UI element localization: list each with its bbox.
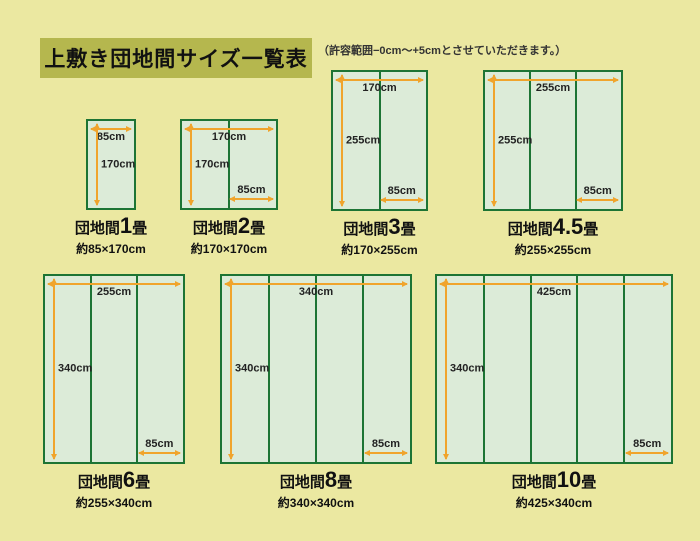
panel-dimension-label: 85cm bbox=[623, 439, 671, 450]
diagram-name-number: 10 bbox=[557, 467, 581, 492]
tolerance-note: （許容範囲−0cm〜+5cmとさせていただきます。） bbox=[318, 42, 566, 58]
diagram-caption: 団地間6畳 約255×340cm bbox=[76, 468, 152, 511]
width-dimension-line bbox=[48, 283, 180, 285]
width-dimension-line bbox=[488, 79, 618, 81]
panel-dimension-line bbox=[139, 452, 180, 454]
diagram-name-suffix: 畳 bbox=[401, 221, 416, 238]
diagram-name-number: 4.5 bbox=[553, 214, 584, 239]
diagram-caption: 団地間8畳 約340×340cm bbox=[278, 468, 354, 511]
panel-dimension-line bbox=[626, 452, 668, 454]
diagram-size: 約255×340cm bbox=[76, 494, 152, 511]
rug-outline: 170cm255cm85cm bbox=[331, 70, 428, 211]
width-dimension-line bbox=[336, 79, 423, 81]
panel-divider-line bbox=[362, 276, 364, 462]
diagram-name-suffix: 畳 bbox=[337, 474, 352, 491]
width-dimension-line bbox=[440, 283, 668, 285]
height-dimension-line bbox=[190, 124, 192, 205]
diagram-caption: 団地間3畳 約170×255cm bbox=[341, 215, 417, 258]
diagram-name-prefix: 団地間 bbox=[75, 220, 120, 237]
width-dimension-label: 425cm bbox=[437, 287, 671, 298]
rug-outline: 255cm255cm85cm bbox=[483, 70, 623, 211]
height-dimension-label: 170cm bbox=[101, 159, 135, 170]
diagram-name: 団地間10畳 bbox=[512, 468, 597, 492]
diagram-name-suffix: 畳 bbox=[581, 474, 596, 491]
panel-dimension-label: 85cm bbox=[574, 186, 621, 197]
width-dimension-label: 255cm bbox=[485, 83, 621, 94]
panel-dimension-line bbox=[365, 452, 407, 454]
diagram-caption: 団地間2畳 約170×170cm bbox=[191, 214, 267, 257]
diagram-name-prefix: 団地間 bbox=[78, 474, 123, 491]
diagram-size: 約170×170cm bbox=[191, 240, 267, 257]
width-dimension-line bbox=[185, 128, 273, 130]
height-dimension-line bbox=[230, 279, 232, 459]
rug-outline: 85cm170cm bbox=[86, 119, 136, 210]
diagram-size: 約85×170cm bbox=[75, 240, 147, 257]
size-diagram: 340cm340cm85cm 団地間8畳 約340×340cm bbox=[220, 274, 412, 464]
panel-divider-line bbox=[136, 276, 138, 462]
diagram-name: 団地間4.5畳 bbox=[508, 215, 599, 239]
diagram-name-prefix: 団地間 bbox=[280, 474, 325, 491]
height-dimension-line bbox=[445, 279, 447, 459]
size-diagram: 425cm340cm85cm 団地間10畳 約425×340cm bbox=[435, 274, 673, 464]
height-dimension-line bbox=[341, 75, 343, 206]
panel-dimension-label: 85cm bbox=[227, 185, 276, 196]
height-dimension-line bbox=[53, 279, 55, 459]
page-title: 上敷き団地間サイズ一覧表 bbox=[40, 38, 312, 78]
size-diagram: 170cm170cm85cm 団地間2畳 約170×170cm bbox=[180, 119, 278, 210]
diagram-name-prefix: 団地間 bbox=[512, 474, 557, 491]
size-diagram: 255cm255cm85cm 団地間4.5畳 約255×255cm bbox=[483, 70, 623, 211]
diagram-size: 約255×255cm bbox=[508, 241, 599, 258]
size-diagram: 170cm255cm85cm 団地間3畳 約170×255cm bbox=[331, 70, 428, 211]
diagram-size: 約340×340cm bbox=[278, 494, 354, 511]
height-dimension-label: 340cm bbox=[450, 364, 484, 375]
diagram-name-prefix: 団地間 bbox=[193, 220, 238, 237]
page-title-text: 上敷き団地間サイズ一覧表 bbox=[44, 43, 307, 73]
diagram-name: 団地間6畳 bbox=[76, 468, 152, 492]
height-dimension-label: 170cm bbox=[195, 159, 229, 170]
panel-divider-line bbox=[623, 276, 625, 462]
panel-divider-line bbox=[315, 276, 317, 462]
panel-dimension-label: 85cm bbox=[378, 186, 427, 197]
diagram-name-prefix: 団地間 bbox=[508, 221, 553, 238]
diagram-caption: 団地間10畳 約425×340cm bbox=[512, 468, 597, 511]
rug-outline: 425cm340cm85cm bbox=[435, 274, 673, 464]
panel-dimension-label: 85cm bbox=[136, 439, 183, 450]
panel-dimension-label: 85cm bbox=[362, 439, 410, 450]
size-diagram: 85cm170cm 団地間1畳 約85×170cm bbox=[86, 119, 136, 210]
width-dimension-label: 340cm bbox=[222, 287, 410, 298]
height-dimension-line bbox=[96, 124, 98, 205]
diagram-name-suffix: 畳 bbox=[132, 220, 147, 237]
diagram-name: 団地間8畳 bbox=[278, 468, 354, 492]
diagram-name-suffix: 畳 bbox=[250, 220, 265, 237]
rug-outline: 255cm340cm85cm bbox=[43, 274, 185, 464]
diagram-size: 約170×255cm bbox=[341, 241, 417, 258]
diagram-name: 団地間2畳 bbox=[191, 214, 267, 238]
diagram-name: 団地間3畳 bbox=[341, 215, 417, 239]
diagram-name-suffix: 畳 bbox=[135, 474, 150, 491]
height-dimension-label: 340cm bbox=[58, 364, 92, 375]
panel-dimension-line bbox=[381, 199, 424, 201]
rug-outline: 170cm170cm85cm bbox=[180, 119, 278, 210]
height-dimension-line bbox=[493, 75, 495, 206]
diagram-name-number: 8 bbox=[325, 467, 337, 492]
diagram-name-suffix: 畳 bbox=[583, 221, 598, 238]
height-dimension-label: 255cm bbox=[346, 135, 380, 146]
width-dimension-label: 170cm bbox=[333, 83, 426, 94]
diagram-size: 約425×340cm bbox=[512, 494, 597, 511]
diagram-caption: 団地間4.5畳 約255×255cm bbox=[508, 215, 599, 258]
panel-dimension-line bbox=[577, 199, 618, 201]
width-dimension-label: 85cm bbox=[88, 132, 134, 143]
diagram-name-number: 1 bbox=[120, 213, 132, 238]
size-diagram: 255cm340cm85cm 団地間6畳 約255×340cm bbox=[43, 274, 185, 464]
diagram-name-prefix: 団地間 bbox=[343, 221, 388, 238]
diagram-name: 団地間1畳 bbox=[75, 214, 147, 238]
panel-divider-line bbox=[576, 276, 578, 462]
diagram-name-number: 6 bbox=[123, 467, 135, 492]
width-dimension-line bbox=[225, 283, 407, 285]
rug-outline: 340cm340cm85cm bbox=[220, 274, 412, 464]
width-dimension-label: 255cm bbox=[45, 287, 183, 298]
height-dimension-label: 340cm bbox=[235, 364, 269, 375]
height-dimension-label: 255cm bbox=[498, 135, 532, 146]
diagram-name-number: 2 bbox=[238, 213, 250, 238]
diagram-name-number: 3 bbox=[388, 214, 400, 239]
panel-divider-line bbox=[530, 276, 532, 462]
diagram-caption: 団地間1畳 約85×170cm bbox=[75, 214, 147, 257]
size-chart-canvas: 上敷き団地間サイズ一覧表 （許容範囲−0cm〜+5cmとさせていただきます。） … bbox=[0, 0, 700, 541]
panel-dimension-line bbox=[230, 198, 273, 200]
width-dimension-label: 170cm bbox=[182, 132, 276, 143]
